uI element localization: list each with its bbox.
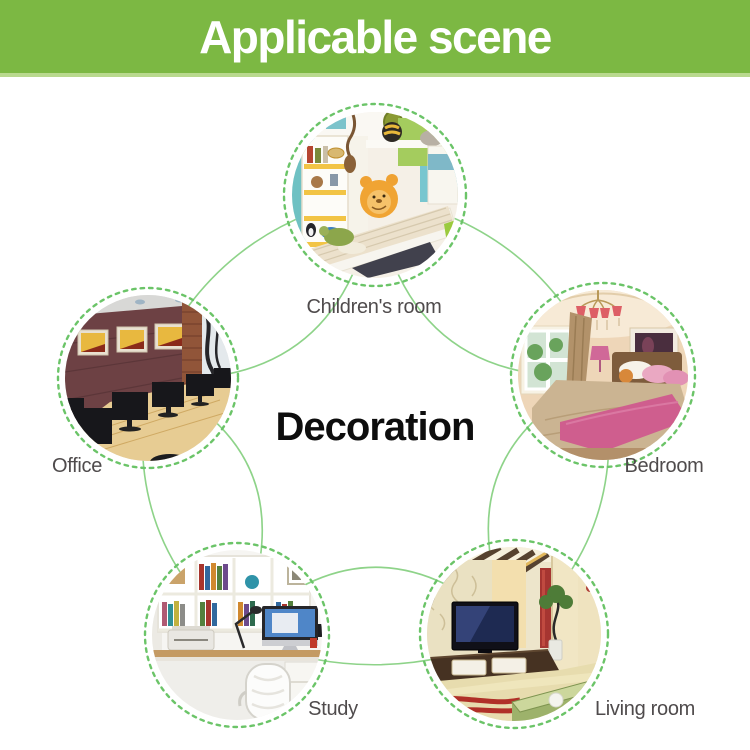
children-room-label: Children's room [307,296,442,319]
study-label: Study [308,698,358,721]
children-room-photo [292,111,458,278]
living-room-label: Living room [595,698,695,721]
monitor-icon [262,606,318,652]
diagram-center-label: Decoration [276,405,475,450]
page: Applicable scene [0,0,750,750]
study-photo [152,550,324,722]
office-label: Office [52,455,102,478]
printer-icon [168,626,214,650]
bedroom-photo [505,262,695,462]
scene-diagram-graphic [0,0,750,750]
living-room-photo [427,547,603,723]
office-photo [64,295,232,470]
bedroom-label: Bedroom [624,455,703,478]
tv-icon [452,602,518,653]
